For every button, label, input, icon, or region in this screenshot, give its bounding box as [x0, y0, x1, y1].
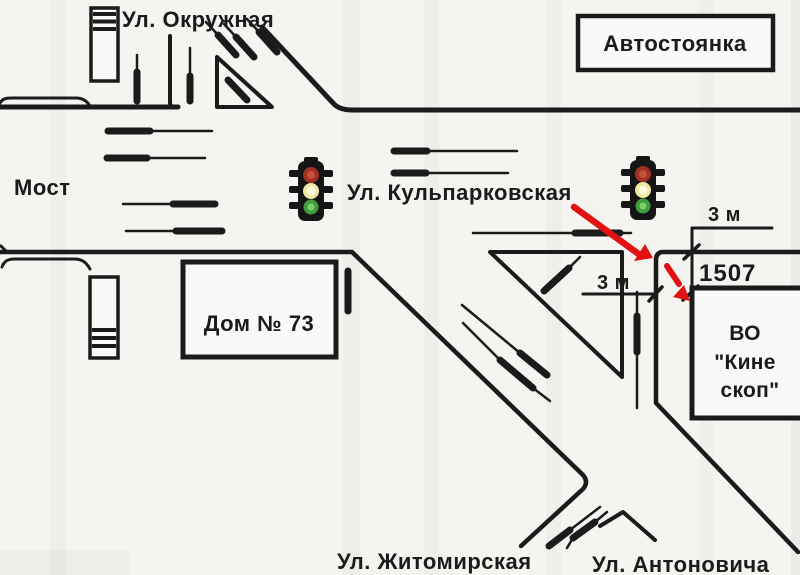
building-icon [90, 8, 118, 358]
gate-number-label: 1507 [699, 260, 756, 287]
parking-label: Автостоянка [603, 31, 747, 56]
traffic-light-icon [621, 156, 665, 220]
street-label-zhitomirskaya: Ул. Житомирская [337, 549, 532, 574]
bridge-label: Мост [14, 175, 70, 200]
traffic-light-icon [289, 157, 333, 221]
street-label-antonovicha: Ул. Антоновича [592, 552, 770, 575]
house-box [183, 262, 336, 357]
scan-smudges [0, 0, 800, 575]
factory-label-line2: "Кине [714, 351, 776, 374]
factory-label-line3: скоп" [721, 379, 780, 402]
house-label: Дом № 73 [204, 311, 315, 336]
street-label-okruzhnaya: Ул. Окружная [122, 7, 274, 32]
street-label-kulparkovskaya: Ул. Кульпарковская [347, 180, 572, 205]
distance-label-side: 3 м [597, 272, 630, 294]
street-map: Ул. Окружная Автостоянка Мост Ул. Кульпа… [0, 0, 800, 575]
factory-label-line1: ВО [729, 322, 761, 345]
distance-label-top: 3 м [708, 204, 741, 226]
